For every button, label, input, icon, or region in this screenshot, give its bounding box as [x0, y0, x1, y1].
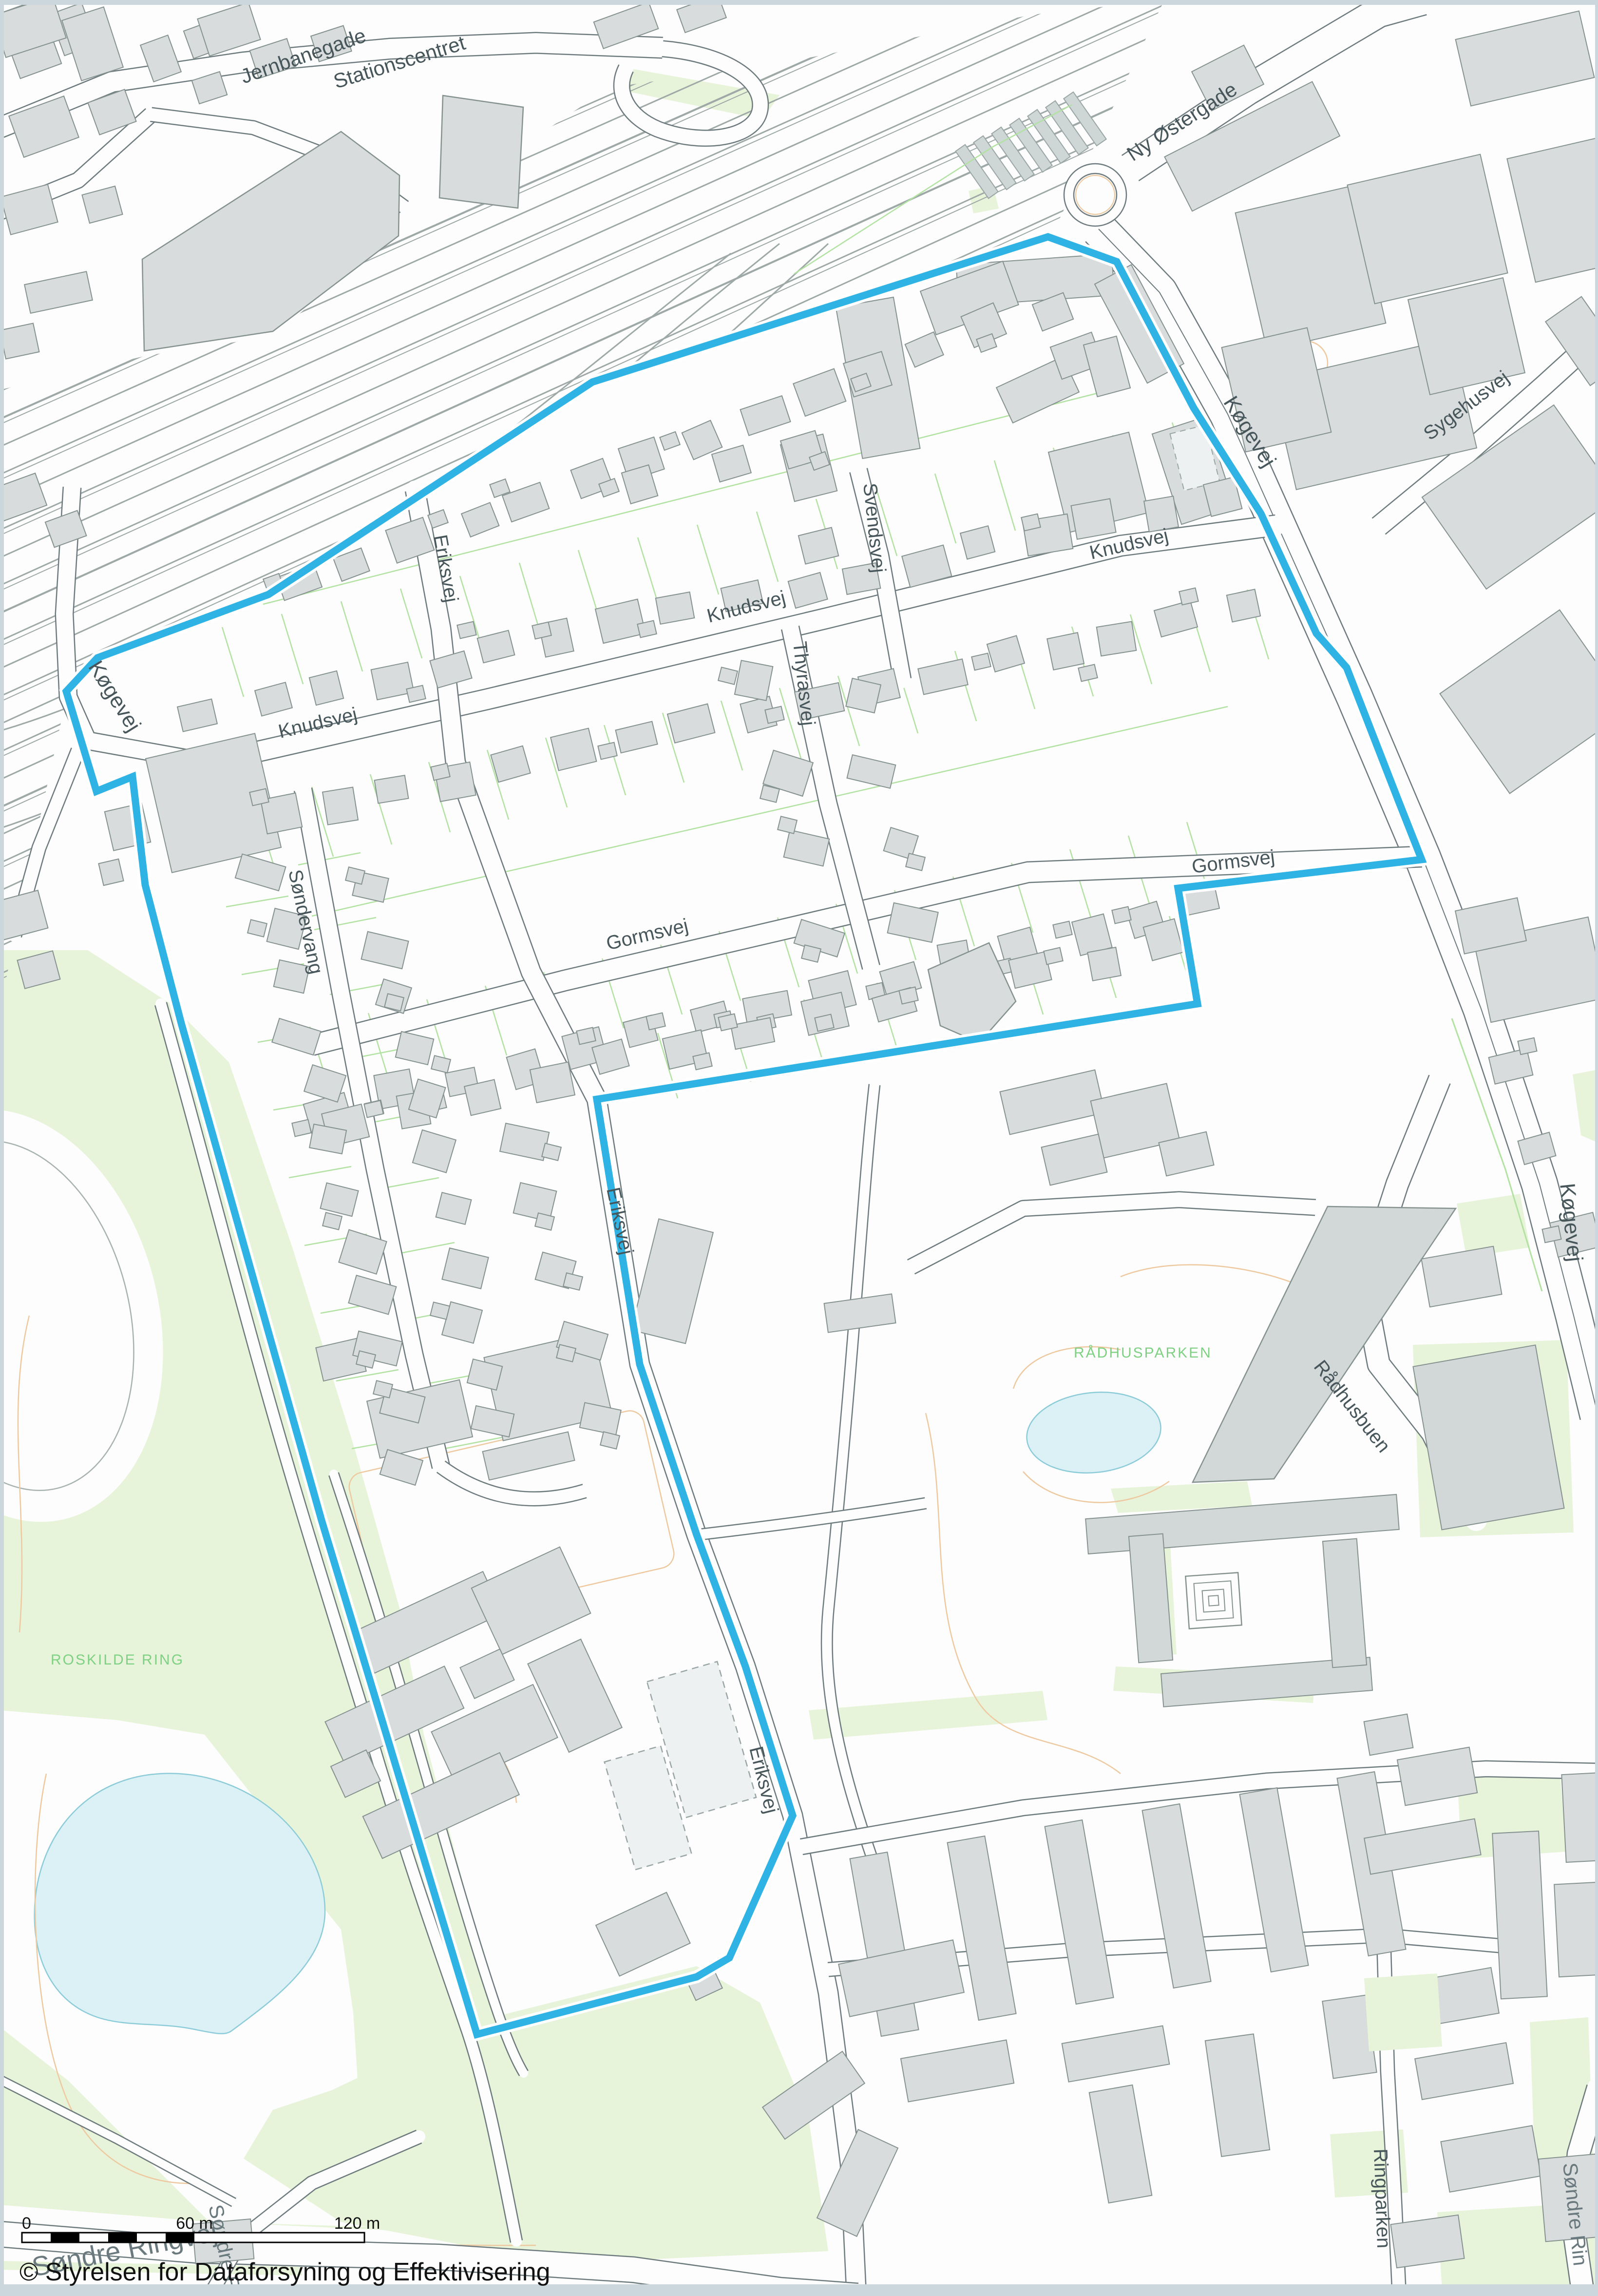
svg-text:0: 0	[22, 2214, 31, 2233]
svg-text:120 m: 120 m	[334, 2214, 380, 2233]
svg-text:© Styrelsen for Dataforsyning: © Styrelsen for Dataforsyning og Effekti…	[19, 2258, 550, 2286]
svg-text:60 m: 60 m	[176, 2214, 213, 2233]
svg-text:RÅDHUSPARKEN: RÅDHUSPARKEN	[1074, 1345, 1212, 1361]
svg-text:ROSKILDE RING: ROSKILDE RING	[51, 1652, 184, 1668]
svg-text:Ringparken: Ringparken	[1370, 2148, 1394, 2249]
